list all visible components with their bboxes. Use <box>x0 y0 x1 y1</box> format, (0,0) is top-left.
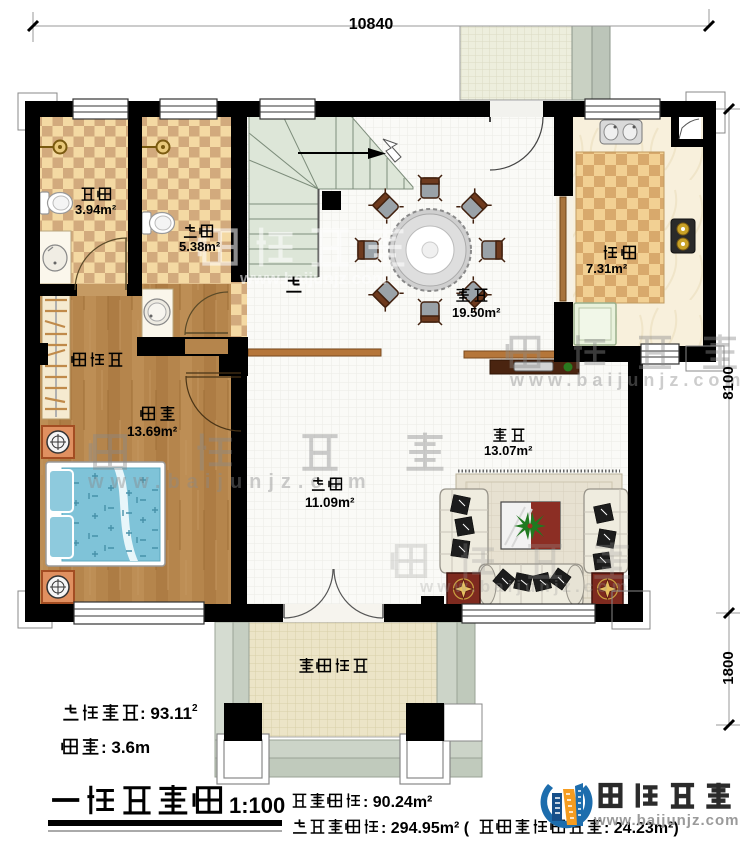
svg-text:: 3.6m: : 3.6m <box>101 738 150 757</box>
svg-text:19.50m²: 19.50m² <box>452 305 501 320</box>
svg-text:: 294.95m² (: : 294.95m² ( <box>381 820 470 837</box>
svg-text:7.31m²: 7.31m² <box>586 261 628 276</box>
svg-text:2: 2 <box>192 703 198 714</box>
svg-text:www.baijunjz.com: www.baijunjz.com <box>87 471 373 493</box>
svg-text:3.94m²: 3.94m² <box>75 202 117 217</box>
svg-text:www.baijunjz.com: www.baijunjz.com <box>239 269 387 288</box>
svg-text:8100: 8100 <box>720 366 737 399</box>
svg-text:www.baijunjz.com: www.baijunjz.com <box>593 812 739 829</box>
svg-text:: 90.24m²: : 90.24m² <box>363 794 432 811</box>
svg-text:: 93.11: : 93.11 <box>140 704 192 723</box>
svg-text:www.baijunjz.com: www.baijunjz.com <box>509 370 745 390</box>
svg-text:1800: 1800 <box>720 651 737 684</box>
svg-text:10840: 10840 <box>349 16 394 33</box>
svg-text:www.baijunjz.com: www.baijunjz.com <box>419 577 631 596</box>
svg-text:1:100: 1:100 <box>229 793 285 818</box>
svg-text:13.07m²: 13.07m² <box>484 443 533 458</box>
svg-text:11.09m²: 11.09m² <box>305 495 355 510</box>
svg-text:5.38m²: 5.38m² <box>179 239 221 254</box>
svg-text:13.69m²: 13.69m² <box>127 424 178 439</box>
